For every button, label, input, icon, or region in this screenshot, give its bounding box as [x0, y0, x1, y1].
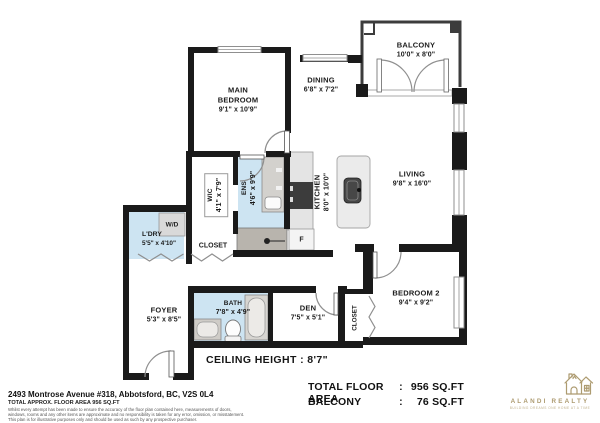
house-window-cross [585, 386, 590, 392]
kitchen-name: KITCHEN [313, 173, 323, 211]
wall [188, 286, 316, 293]
house-door [571, 387, 577, 394]
bedroom2-door-arc [375, 252, 401, 278]
label-dining: DINING 6'8" x 7'2" [304, 76, 338, 95]
den-name: DEN [291, 304, 325, 314]
den-dims: 7'5" x 5'1" [291, 313, 325, 322]
wic-dims: 4'1" x 7'9" [216, 178, 225, 212]
dining-name: DINING [304, 76, 338, 86]
bathtub-basin [248, 298, 265, 337]
main-bedroom-door [285, 131, 290, 153]
bedroom2-name: BEDROOM 2 [392, 289, 439, 299]
main-bedroom-dims: 9'1" x 10'9" [211, 105, 265, 114]
balcony-area-separator: : [396, 396, 406, 408]
wall [268, 293, 273, 341]
approx-floor-area: TOTAL APPROX. FLOOR AREA 956 SQ.FT [8, 400, 120, 406]
total-floor-area-separator: : [396, 381, 406, 393]
wall [285, 47, 291, 133]
wall [363, 252, 373, 294]
wic-label-box: WIC 4'1" x 7'9" [204, 173, 228, 217]
property-address: 2493 Montrose Avenue #318, Abbotsford, B… [8, 390, 213, 399]
den-door [334, 293, 338, 315]
wall [123, 205, 192, 212]
foyer-dims: 5'3" x 8'5" [147, 315, 181, 324]
label-bedroom2: BEDROOM 2 9'4" x 9'2" [392, 289, 439, 308]
wall [348, 55, 362, 63]
label-bath: BATH 7'8" x 4'9" [216, 300, 250, 318]
area-totals: TOTAL FLOOR AREA : 956 SQ.FT BALCONY : 7… [308, 381, 464, 410]
toilet [226, 320, 241, 338]
balcony-door-left-arc [380, 60, 412, 92]
ens-toilet [265, 197, 281, 209]
entry-door [169, 351, 174, 377]
balcony-pillar [450, 22, 461, 33]
wall [356, 84, 368, 97]
bedroom2-closet-label: CLOSET [352, 305, 359, 331]
balcony-name: BALCONY [397, 41, 435, 51]
island-faucet [357, 188, 361, 192]
bedroom2-door [373, 252, 377, 278]
bedroom2-closet-bifold-door [369, 296, 375, 338]
ceiling-height-note: CEILING HEIGHT : 8'7" [206, 354, 328, 366]
living-name: LIVING [393, 170, 431, 180]
kitchen-peninsula [237, 228, 287, 251]
window-bedroom2 [454, 277, 464, 328]
ens-name: ENS [241, 171, 249, 205]
balcony-door-right-arc [414, 60, 446, 92]
window-living-upper [454, 104, 464, 132]
main-bedroom-name: MAIN BEDROOM [211, 86, 265, 106]
realty-house-icon [562, 370, 600, 397]
floor-plan-page: MAIN BEDROOM 9'1" x 10'9" DINING 6'8" x … [0, 0, 600, 423]
label-foyer: FOYER 5'3" x 8'5" [147, 306, 181, 325]
ens-fixture-mark [276, 168, 282, 172]
label-living: LIVING 9'8" x 16'0" [393, 170, 431, 189]
wall [188, 341, 363, 348]
wall [123, 205, 129, 380]
window-dining [303, 55, 347, 62]
wall [188, 47, 194, 157]
main-bedroom-door-arc [265, 131, 287, 153]
bath-sink [197, 322, 218, 337]
wall [188, 151, 240, 157]
realty-brand-name: ALANDI REALTY [500, 398, 600, 405]
foyer-name: FOYER [147, 306, 181, 316]
bath-name: BATH [216, 300, 250, 308]
ens-door [240, 155, 264, 159]
kitchen-dims: 8'0" x 10'0" [322, 173, 331, 211]
wall [233, 211, 238, 234]
window-living-lower [454, 170, 464, 215]
wall [284, 151, 290, 229]
window-main-bedroom [218, 47, 261, 53]
disclaimer-line-3: This plan is for illustrative purposes o… [8, 417, 197, 422]
wall [452, 88, 467, 104]
peninsula-sink-dot [264, 238, 270, 244]
balcony-area-row: BALCONY : 76 SQ.FT [308, 396, 464, 410]
wall [355, 244, 374, 252]
ens-fixture-mark [276, 186, 282, 190]
bedroom2-dims: 9'4" x 9'2" [392, 298, 439, 307]
balcony-area-value: 76 SQ.FT [406, 396, 464, 408]
wall [233, 155, 238, 185]
label-laundry: L'DRY 5'5" x 4'10" [142, 231, 176, 248]
dining-dims: 6'8" x 7'2" [304, 85, 338, 94]
wall [233, 250, 333, 257]
label-balcony: BALCONY 10'0" x 8'0" [397, 41, 435, 60]
balcony-dims: 10'0" x 8'0" [397, 50, 435, 59]
living-dims: 9'8" x 16'0" [393, 179, 431, 188]
wall [188, 286, 194, 380]
laundry-dims: 5'5" x 4'10" [142, 240, 176, 248]
wall [363, 337, 467, 345]
label-den: DEN 7'5" x 5'1" [291, 304, 325, 323]
balcony-door-left [377, 59, 382, 92]
balcony-wall-return [364, 23, 374, 34]
bath-dims: 7'8" x 4'9" [216, 309, 250, 318]
wall [452, 215, 467, 248]
washer-dryer-label: W/D [166, 221, 179, 228]
label-main-bedroom: MAIN BEDROOM 9'1" x 10'9" [211, 86, 265, 115]
ens-dims: 4'6" x 9'9" [250, 171, 259, 205]
hall-closet-label: CLOSET [199, 242, 227, 249]
laundry-name: L'DRY [142, 231, 176, 240]
label-ens: ENS 4'6" x 9'9" [241, 171, 259, 205]
realty-brand-tagline: BUILDING DREAMS ONE HOME AT A TIME [493, 406, 600, 410]
wic-name: WIC [207, 178, 215, 212]
hall-closet-bifold-door [191, 254, 233, 261]
label-wic: WIC 4'1" x 7'9" [204, 173, 228, 217]
balcony-area-label: BALCONY [308, 396, 396, 408]
fridge-label: F [299, 237, 303, 244]
balcony-door-right [444, 59, 449, 92]
wall [338, 286, 345, 347]
total-floor-area-row: TOTAL FLOOR AREA : 956 SQ.FT [308, 381, 464, 395]
total-floor-area-value: 956 SQ.FT [406, 381, 464, 393]
label-kitchen: KITCHEN 8'0" x 10'0" [313, 173, 332, 211]
wall [452, 132, 467, 170]
